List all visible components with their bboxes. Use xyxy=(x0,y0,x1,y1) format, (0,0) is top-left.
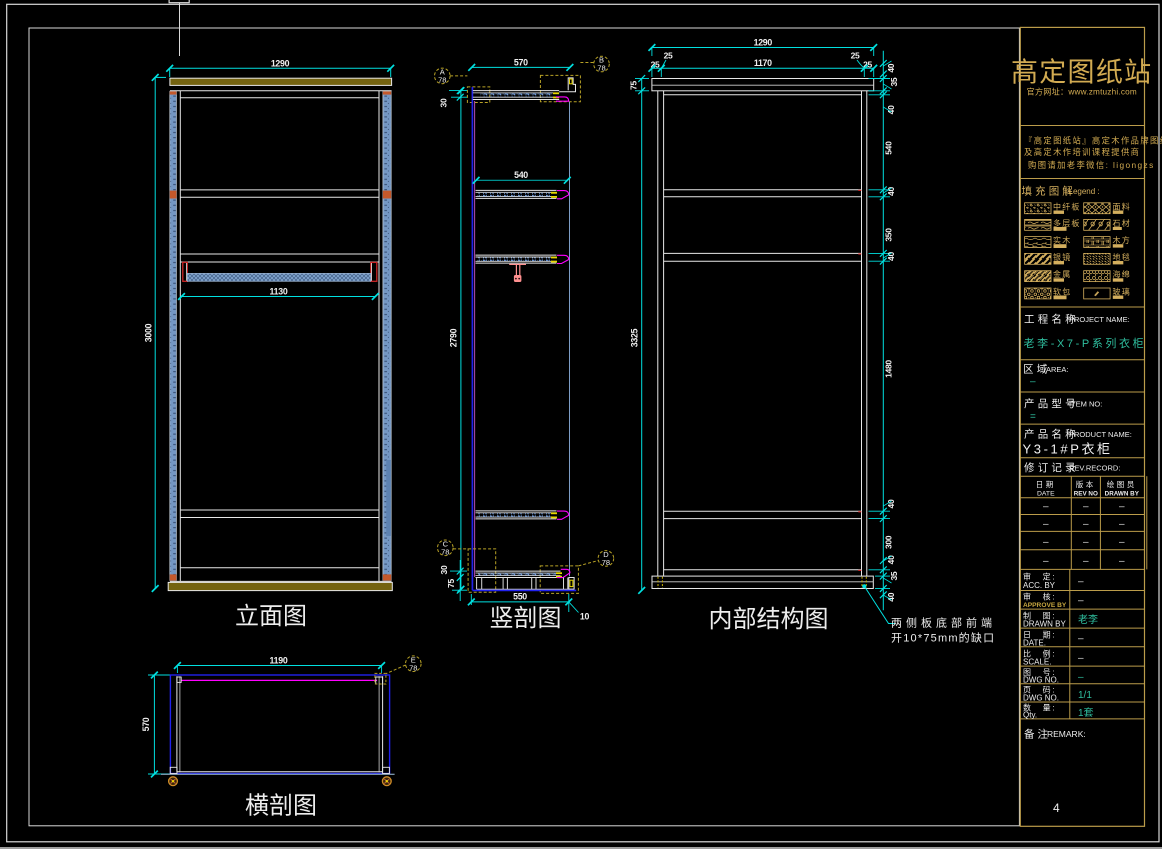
svg-text:1190: 1190 xyxy=(270,655,288,665)
svg-text:–: – xyxy=(1043,519,1049,530)
svg-text:DRAWN BY: DRAWN BY xyxy=(1023,620,1066,629)
svg-text:版本: 版本 xyxy=(1076,479,1096,489)
svg-text:78: 78 xyxy=(438,76,446,85)
svg-text:多层板: 多层板 xyxy=(1053,218,1081,228)
svg-text:海绵: 海绵 xyxy=(1113,269,1131,279)
svg-text:1/1: 1/1 xyxy=(1078,690,1092,701)
svg-text:540: 540 xyxy=(884,141,894,155)
svg-text:开10*75mm的缺口: 开10*75mm的缺口 xyxy=(891,631,995,645)
svg-text:–: – xyxy=(1119,519,1125,530)
svg-text:REV NO: REV NO xyxy=(1074,491,1098,498)
svg-text:REV.RECORD:: REV.RECORD: xyxy=(1069,463,1120,472)
svg-text:–: – xyxy=(1078,596,1084,607)
svg-text:1290: 1290 xyxy=(271,58,290,68)
svg-text:高定图纸站: 高定图纸站 xyxy=(1011,57,1153,87)
svg-text:软包: 软包 xyxy=(1053,287,1071,297)
svg-text:Legend :: Legend : xyxy=(1069,187,1100,196)
svg-text:官方网址：www.zmtuzhi.com: 官方网址：www.zmtuzhi.com xyxy=(1026,87,1136,97)
svg-text:中纤板: 中纤板 xyxy=(1053,202,1081,212)
svg-text:银镜: 银镜 xyxy=(1053,252,1071,262)
svg-text:300: 300 xyxy=(884,535,894,549)
svg-text:审 核:: 审 核: xyxy=(1023,592,1056,602)
svg-text:–: – xyxy=(1078,634,1084,645)
svg-text:ITEM NO:: ITEM NO: xyxy=(1069,400,1102,409)
svg-text:–: – xyxy=(1078,577,1084,588)
svg-text:–: – xyxy=(1078,672,1084,683)
svg-text:Qty.: Qty. xyxy=(1023,711,1037,720)
svg-text:ACC. BY: ACC. BY xyxy=(1023,581,1056,590)
svg-text:25: 25 xyxy=(664,51,673,61)
svg-text:1套: 1套 xyxy=(1078,706,1094,719)
svg-text:25: 25 xyxy=(851,51,860,61)
svg-text:75: 75 xyxy=(629,81,639,90)
svg-text:APPROVE BY: APPROVE BY xyxy=(1023,602,1067,609)
svg-text:SCALE.: SCALE. xyxy=(1023,658,1051,667)
svg-text:PRODUCT NAME:: PRODUCT NAME: xyxy=(1069,430,1132,439)
svg-text:3325: 3325 xyxy=(630,328,640,347)
svg-text:立面图: 立面图 xyxy=(235,603,307,630)
svg-text:绘图员: 绘图员 xyxy=(1107,479,1137,489)
svg-text:PROJECT NAME:: PROJECT NAME: xyxy=(1069,315,1130,324)
svg-text:2790: 2790 xyxy=(449,328,459,347)
svg-text:–: – xyxy=(1030,377,1036,388)
svg-text:–: – xyxy=(1043,502,1049,513)
svg-text:35: 35 xyxy=(889,571,899,580)
svg-text:购图请加老李微信: ligongzs: 购图请加老李微信: ligongzs xyxy=(1028,160,1155,170)
svg-text:DWG NO.: DWG NO. xyxy=(1023,694,1059,703)
svg-text:实木: 实木 xyxy=(1053,235,1071,245)
svg-text:内部结构图: 内部结构图 xyxy=(709,606,829,633)
svg-text:–: – xyxy=(1119,502,1125,513)
svg-text:玻璃: 玻璃 xyxy=(1113,287,1131,297)
svg-text:78: 78 xyxy=(441,548,449,557)
svg-text:40: 40 xyxy=(886,63,896,72)
svg-text:审 定:: 审 定: xyxy=(1023,572,1056,582)
svg-text:–: – xyxy=(1043,556,1049,567)
svg-text:DWG NO.: DWG NO. xyxy=(1023,676,1059,685)
svg-text:30: 30 xyxy=(439,565,449,574)
svg-text:1480: 1480 xyxy=(884,360,894,378)
svg-text:–: – xyxy=(1083,556,1089,567)
svg-text:DATE.: DATE. xyxy=(1023,639,1046,648)
svg-text:350: 350 xyxy=(884,228,894,242)
svg-text:木方: 木方 xyxy=(1113,235,1131,245)
svg-text:石材: 石材 xyxy=(1113,218,1131,228)
svg-text:1290: 1290 xyxy=(754,37,773,47)
svg-text:570: 570 xyxy=(514,58,528,68)
svg-text:78: 78 xyxy=(409,663,417,672)
svg-text:30: 30 xyxy=(439,98,449,107)
svg-text:–: – xyxy=(1083,519,1089,530)
svg-text:DATE: DATE xyxy=(1037,491,1055,498)
svg-text:–: – xyxy=(1083,537,1089,548)
svg-text:570: 570 xyxy=(141,717,151,731)
svg-text:75: 75 xyxy=(446,579,456,588)
svg-text:横剖图: 横剖图 xyxy=(245,793,317,820)
svg-text:540: 540 xyxy=(514,170,528,180)
svg-text:–: – xyxy=(1078,653,1084,664)
svg-text:3000: 3000 xyxy=(144,323,154,342)
svg-text:及高定木作培训课程提供商: 及高定木作培训课程提供商 xyxy=(1024,147,1140,157)
svg-text:Y3-1#P衣柜: Y3-1#P衣柜 xyxy=(1023,442,1113,457)
svg-text:DRAWN BY: DRAWN BY xyxy=(1105,491,1140,498)
svg-text:竖剖图: 竖剖图 xyxy=(490,605,562,632)
svg-text:『高定图纸站』高定木作品牌图纸: 『高定图纸站』高定木作品牌图纸 xyxy=(1024,136,1162,146)
svg-text:=: = xyxy=(1030,412,1036,423)
svg-text:老李: 老李 xyxy=(1078,613,1098,626)
svg-text:金属: 金属 xyxy=(1053,269,1071,279)
svg-text:550: 550 xyxy=(513,592,527,602)
svg-text:78: 78 xyxy=(602,558,610,567)
svg-text:40: 40 xyxy=(886,592,896,601)
svg-text:AREA:: AREA: xyxy=(1046,365,1069,374)
svg-text:78: 78 xyxy=(597,64,605,73)
svg-text:面料: 面料 xyxy=(1113,202,1131,212)
svg-text:日期: 日期 xyxy=(1036,480,1056,489)
svg-text:–: – xyxy=(1083,502,1089,513)
svg-text:–: – xyxy=(1119,537,1125,548)
svg-text:REMARK:: REMARK: xyxy=(1047,729,1086,739)
svg-text:4: 4 xyxy=(1053,801,1060,815)
svg-text:地毯: 地毯 xyxy=(1113,252,1131,262)
svg-text:–: – xyxy=(1043,537,1049,548)
svg-text:1170: 1170 xyxy=(754,58,772,68)
svg-text:两侧板底部前端: 两侧板底部前端 xyxy=(891,616,996,630)
svg-text:10: 10 xyxy=(580,612,590,622)
svg-text:35: 35 xyxy=(889,77,899,86)
svg-text:–: – xyxy=(1119,556,1125,567)
svg-text:老李-X7-P系列衣柜: 老李-X7-P系列衣柜 xyxy=(1024,336,1147,350)
svg-text:1130: 1130 xyxy=(270,286,288,296)
